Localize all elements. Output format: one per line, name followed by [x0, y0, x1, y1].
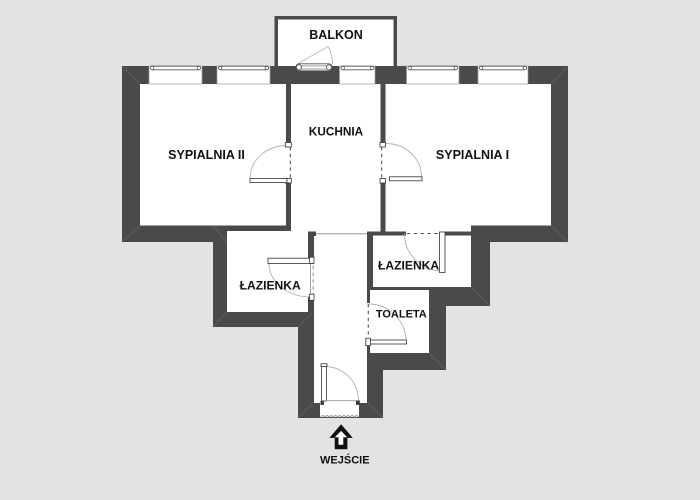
svg-text:BALKON: BALKON	[309, 28, 362, 42]
svg-text:SYPIALNIA II: SYPIALNIA II	[168, 148, 245, 162]
svg-text:WEJŚCIE: WEJŚCIE	[320, 453, 370, 466]
svg-text:SYPIALNIA I: SYPIALNIA I	[436, 148, 509, 162]
svg-text:ŁAZIENKA: ŁAZIENKA	[378, 258, 439, 272]
svg-text:ŁAZIENKA: ŁAZIENKA	[240, 278, 301, 292]
svg-text:KUCHNIA: KUCHNIA	[309, 125, 364, 139]
svg-text:TOALETA: TOALETA	[376, 308, 427, 320]
